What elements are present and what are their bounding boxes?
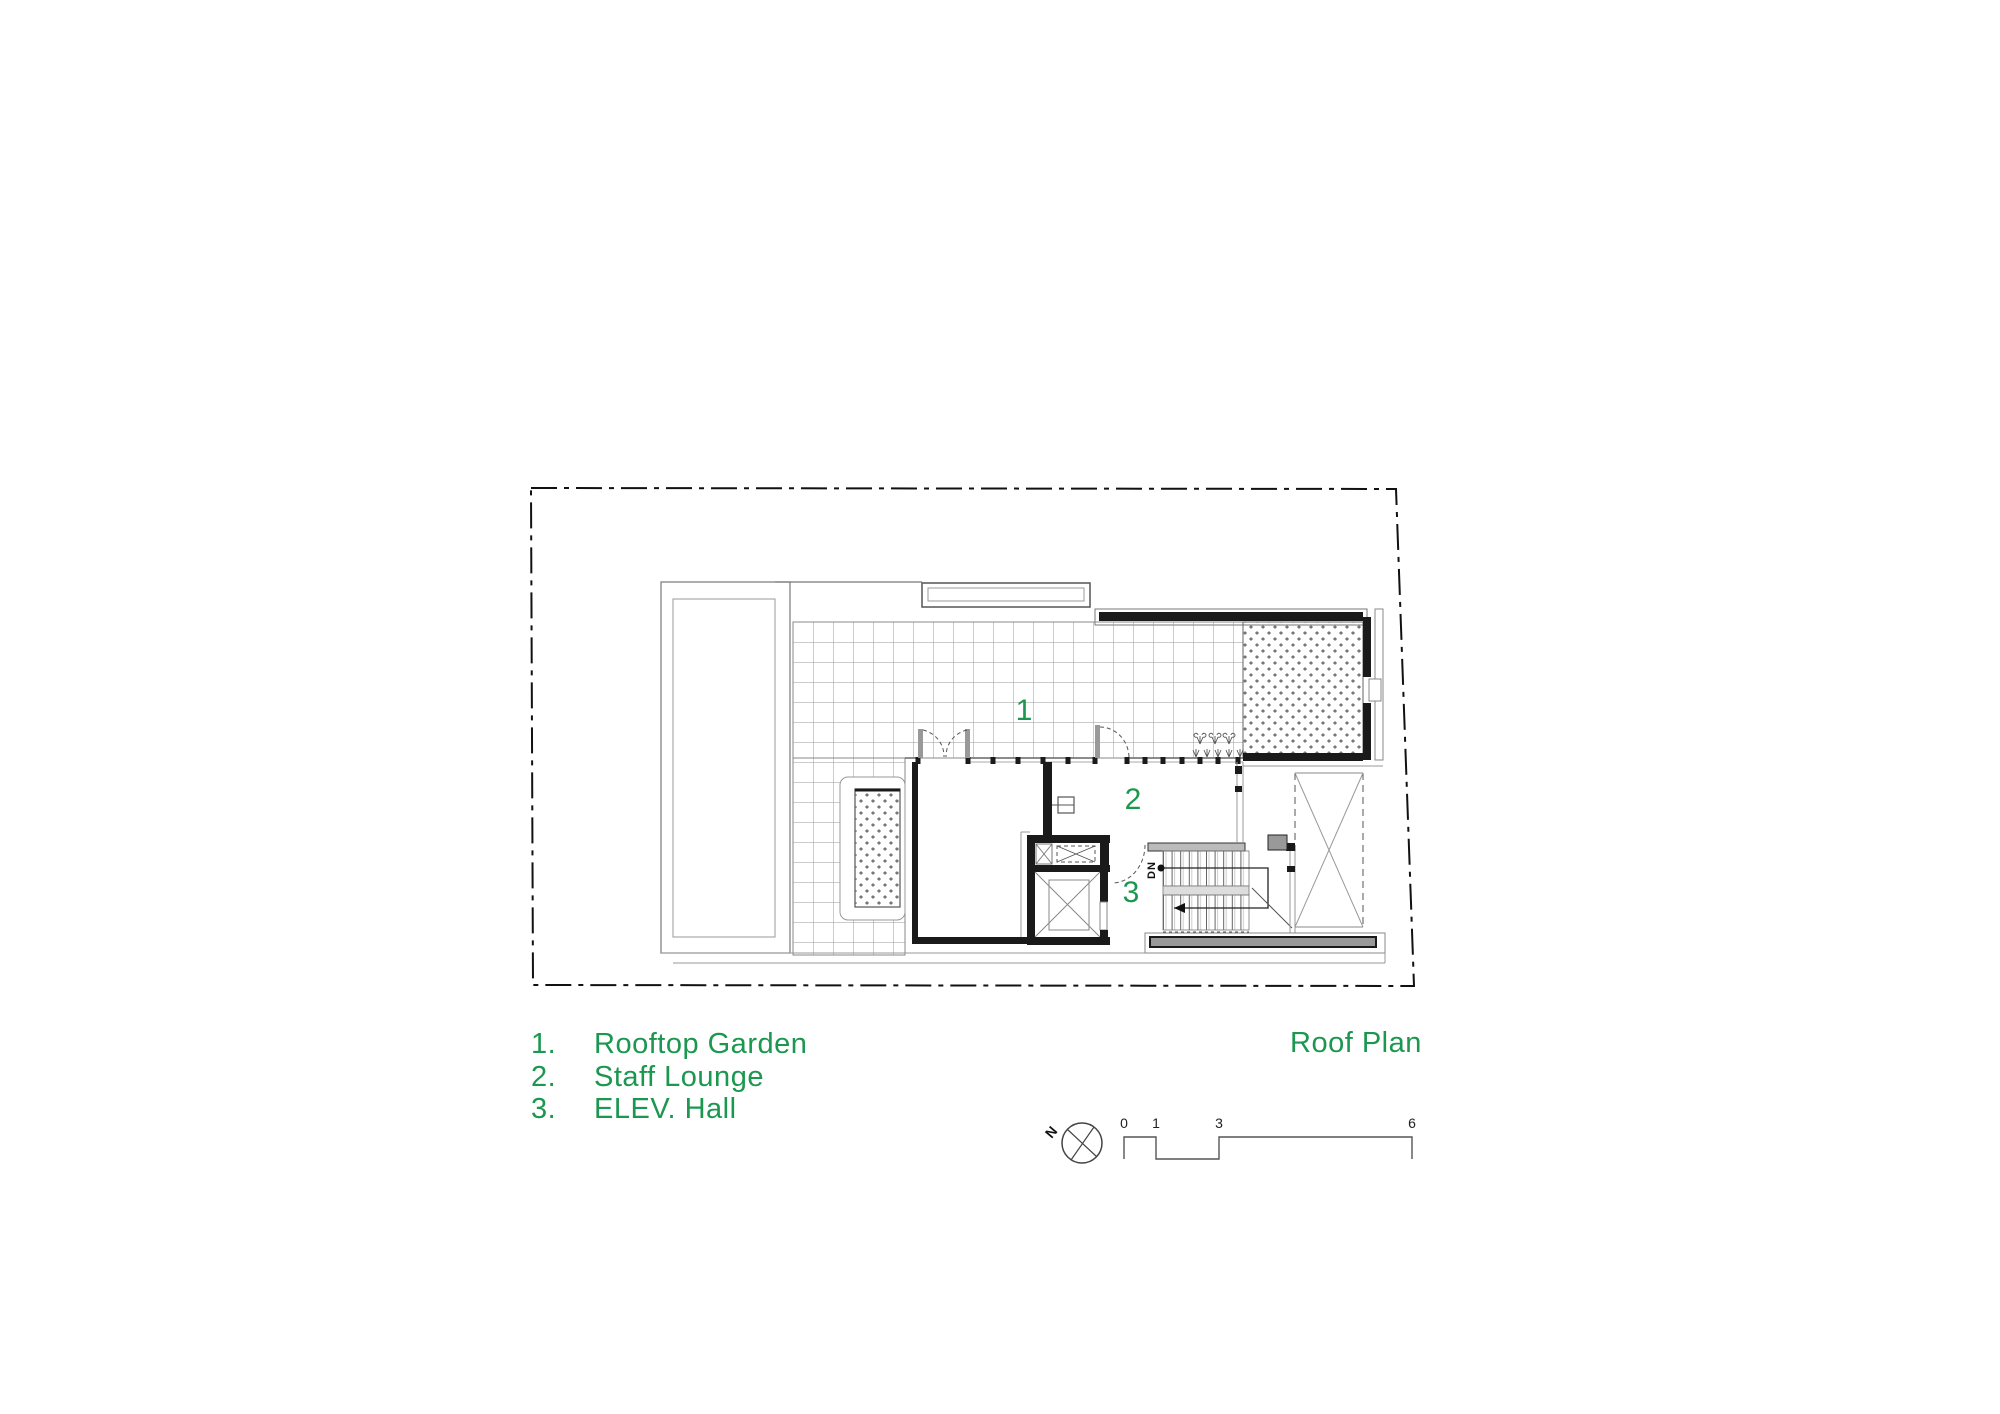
legend-num-1: 1. xyxy=(531,1028,594,1061)
duct-box xyxy=(1268,835,1287,850)
elev-machine-room xyxy=(1036,844,1095,864)
elevator-shaft xyxy=(1035,872,1100,937)
legend-label-1: Rooftop Garden xyxy=(594,1028,951,1061)
scale-bar xyxy=(1124,1137,1412,1159)
elev-bottom-wall xyxy=(1027,937,1110,945)
left-terrace xyxy=(661,582,790,953)
scale-tick-0: 0 xyxy=(1120,1115,1128,1131)
plan-drawing xyxy=(0,0,2000,1414)
parapet-coping-bottom xyxy=(1145,933,1385,953)
stair-direction-label: DN xyxy=(1146,861,1158,879)
legend-label-2: Staff Lounge xyxy=(594,1061,951,1094)
elev-right-wall-thin xyxy=(1100,902,1107,930)
scale-tick-3: 3 xyxy=(1215,1115,1223,1131)
north-arrow xyxy=(1062,1123,1102,1163)
elev-left-wall xyxy=(1027,835,1035,945)
elev-mid-wall xyxy=(1027,865,1110,872)
gravel-bottom-wall xyxy=(1243,753,1363,761)
gravel-area xyxy=(1243,609,1383,761)
scale-tick-1: 1 xyxy=(1152,1115,1160,1131)
void-open-below xyxy=(1295,773,1363,927)
legend-num-2: 2. xyxy=(531,1061,594,1094)
east-wall-opening xyxy=(1369,679,1381,701)
lounge-right-railing xyxy=(1235,762,1243,843)
legend-row-2: 2. Staff Lounge xyxy=(531,1061,951,1094)
roof-plan-sheet: 1 2 3 DN 1. Rooftop Garden 2. Staff Loun… xyxy=(0,0,2000,1414)
legend-num-3: 3. xyxy=(531,1093,594,1126)
planter xyxy=(840,777,905,920)
staircase xyxy=(1148,835,1295,935)
stair-flight-lower xyxy=(1163,895,1249,930)
sheet-title: Roof Plan xyxy=(1290,1027,1422,1060)
elevator-block xyxy=(1027,835,1110,945)
legend-row-1: 1. Rooftop Garden xyxy=(531,1028,951,1061)
legend-row-3: 3. ELEV. Hall xyxy=(531,1093,951,1126)
gravel-right-wall-lower xyxy=(1363,703,1371,760)
plan-label-rooftop-garden: 1 xyxy=(1016,694,1033,728)
elev-right-wall-mid xyxy=(1100,872,1108,902)
skylight xyxy=(922,583,1090,607)
plan-label-elev-hall: 3 xyxy=(1123,876,1140,910)
stair-handrail xyxy=(1163,886,1249,895)
terrace-inner xyxy=(673,599,775,937)
elev-top-wall xyxy=(1027,835,1110,843)
elev-right-wall-upper xyxy=(1100,835,1109,872)
wall-fixture xyxy=(1052,797,1074,813)
stair-path-start-dot xyxy=(1158,865,1165,872)
gravel-right-wall-upper xyxy=(1363,617,1371,677)
stair-top-wall xyxy=(1148,843,1245,851)
scale-tick-6: 6 xyxy=(1408,1115,1416,1131)
plan-label-staff-lounge: 2 xyxy=(1125,783,1142,817)
rooftop-garden-tiles-main xyxy=(793,622,1243,758)
legend-label-3: ELEV. Hall xyxy=(594,1093,951,1126)
